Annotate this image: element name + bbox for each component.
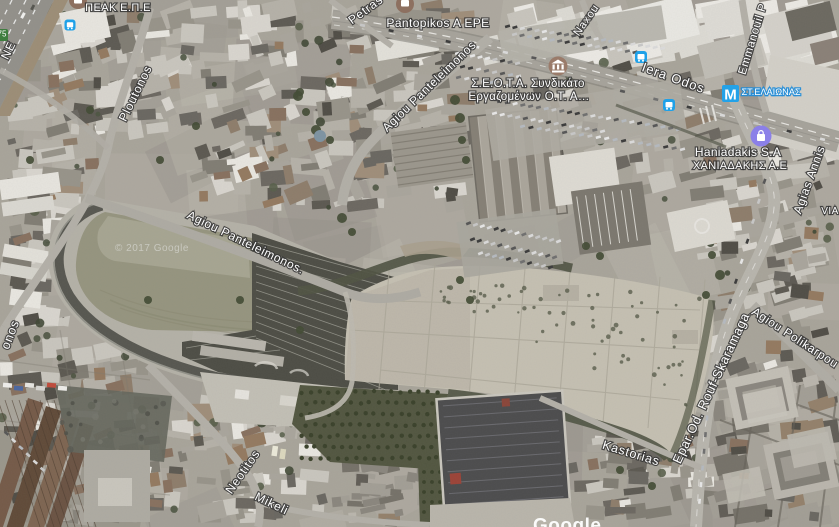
svg-text:Haniadakis S.A: Haniadakis S.A (695, 145, 781, 159)
svg-text:M: M (724, 87, 737, 104)
svg-text:© 2017 Google: © 2017 Google (115, 243, 189, 254)
svg-text:ΣΤ.ΕΛΑΙΩΝΑΣ: ΣΤ.ΕΛΑΙΩΝΑΣ (741, 87, 800, 97)
svg-text:VIA: VIA (821, 206, 839, 217)
svg-text:Εργαζομένων Ο.Τ. Α…: Εργαζομένων Ο.Τ. Α… (468, 91, 589, 103)
svg-text:Σ.Ε.Ο.Τ.Α. Συνδικάτο: Σ.Ε.Ο.Τ.Α. Συνδικάτο (471, 78, 584, 90)
svg-text:ΧΑΝΙΑΔΑΚΗΣ Α.Ε: ΧΑΝΙΑΔΑΚΗΣ Α.Ε (693, 160, 787, 172)
svg-text:Google: Google (533, 516, 601, 527)
svg-text:ΠΕΑΚ Ε.Π.Ε: ΠΕΑΚ Ε.Π.Ε (85, 2, 151, 14)
svg-text:Pantopikos A EPE: Pantopikos A EPE (386, 16, 489, 30)
svg-text:75: 75 (0, 30, 7, 39)
